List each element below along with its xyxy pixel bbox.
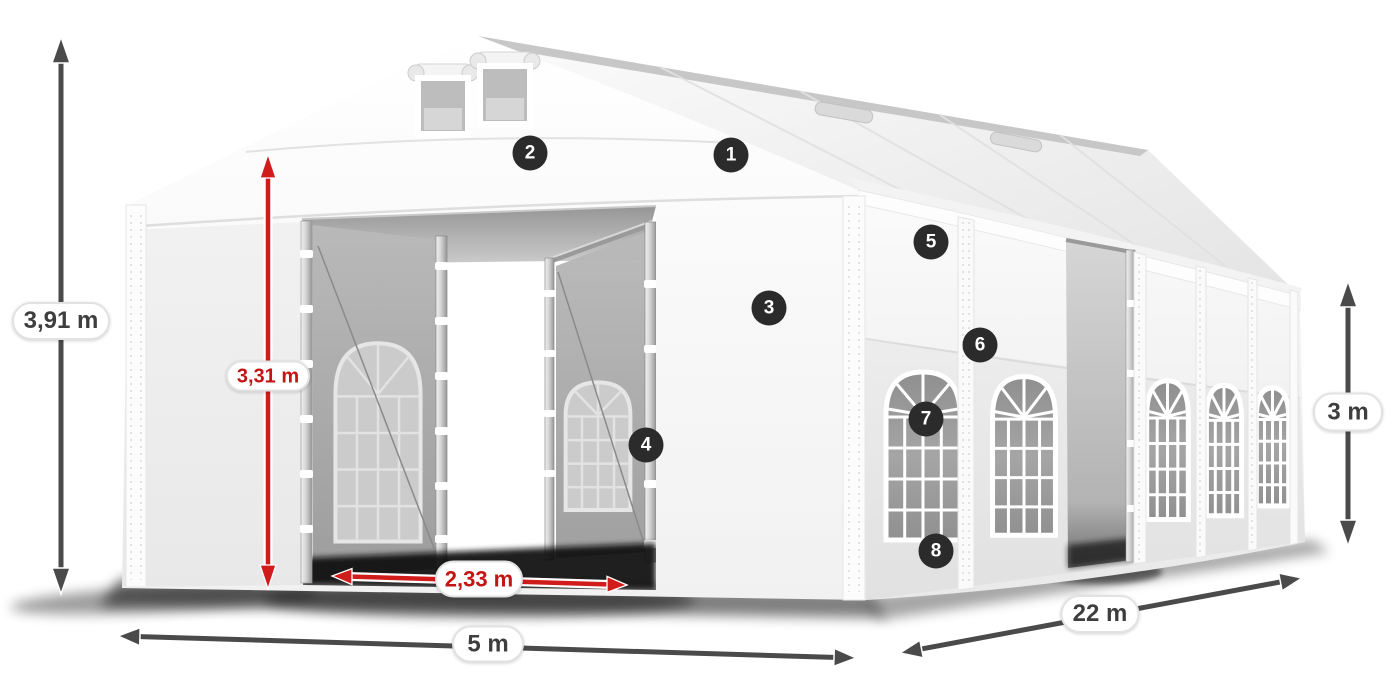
marker-2: 2: [513, 136, 548, 171]
total-height-label: 3,91 m: [12, 302, 110, 340]
marker-1: 1: [714, 138, 749, 173]
side-doorway: [1066, 240, 1135, 568]
tent-dimension-diagram: 3,91 m 3,31 m 2,33 m 5 m 22 m 3 m 1 2 3 …: [0, 0, 1400, 700]
marker-3: 3: [752, 291, 787, 326]
marker-8: 8: [919, 534, 954, 569]
entrance-width-label: 2,33 m: [435, 561, 523, 598]
side-length-label: 22 m: [1061, 595, 1140, 633]
marker-6: 6: [963, 328, 998, 363]
marker-4: 4: [629, 428, 664, 463]
front-width-label: 5 m: [452, 626, 524, 663]
tent-illustration: [0, 0, 1400, 700]
marker-5: 5: [914, 225, 949, 260]
marker-7: 7: [909, 402, 944, 437]
wall-height-label: 3 m: [1313, 393, 1383, 432]
entrance-interior: [302, 206, 657, 590]
clearance-height-label: 3,31 m: [226, 361, 310, 392]
